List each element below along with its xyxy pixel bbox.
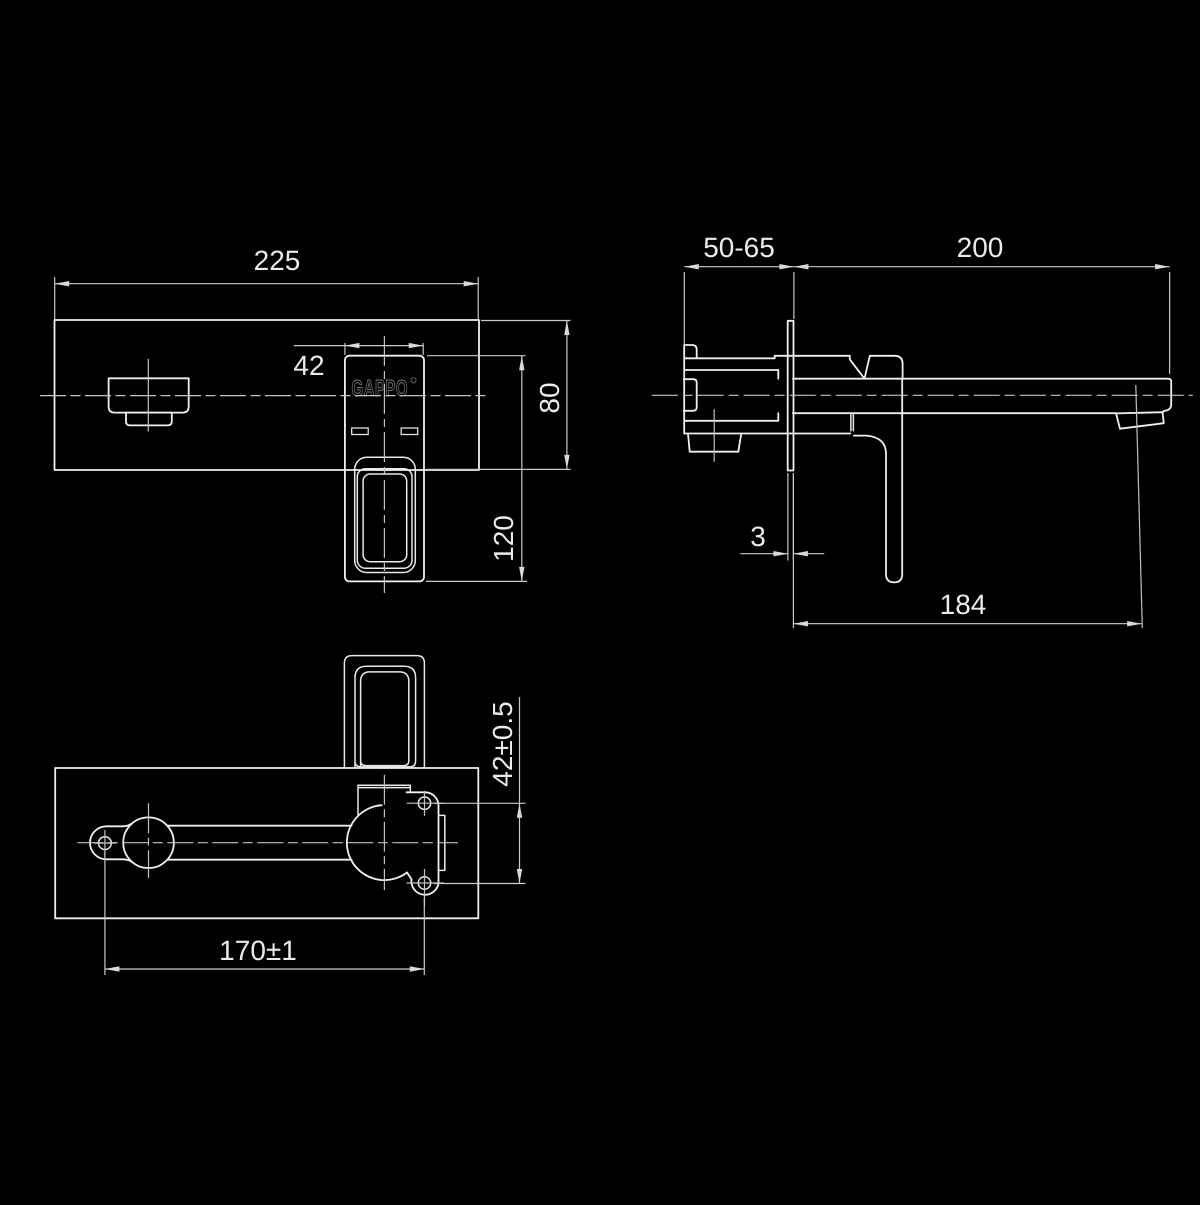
- svg-text:200: 200: [957, 232, 1004, 263]
- svg-text:42: 42: [293, 350, 324, 381]
- svg-text:184: 184: [940, 589, 987, 620]
- svg-text:GAPPO: GAPPO: [352, 376, 409, 402]
- svg-text:80: 80: [534, 382, 565, 413]
- svg-text:42±0.5: 42±0.5: [487, 701, 518, 786]
- svg-text:170±1: 170±1: [219, 935, 297, 966]
- svg-text:120: 120: [488, 515, 519, 562]
- svg-text:50-65: 50-65: [703, 232, 775, 263]
- svg-text:3: 3: [750, 521, 766, 552]
- svg-text:225: 225: [254, 245, 301, 276]
